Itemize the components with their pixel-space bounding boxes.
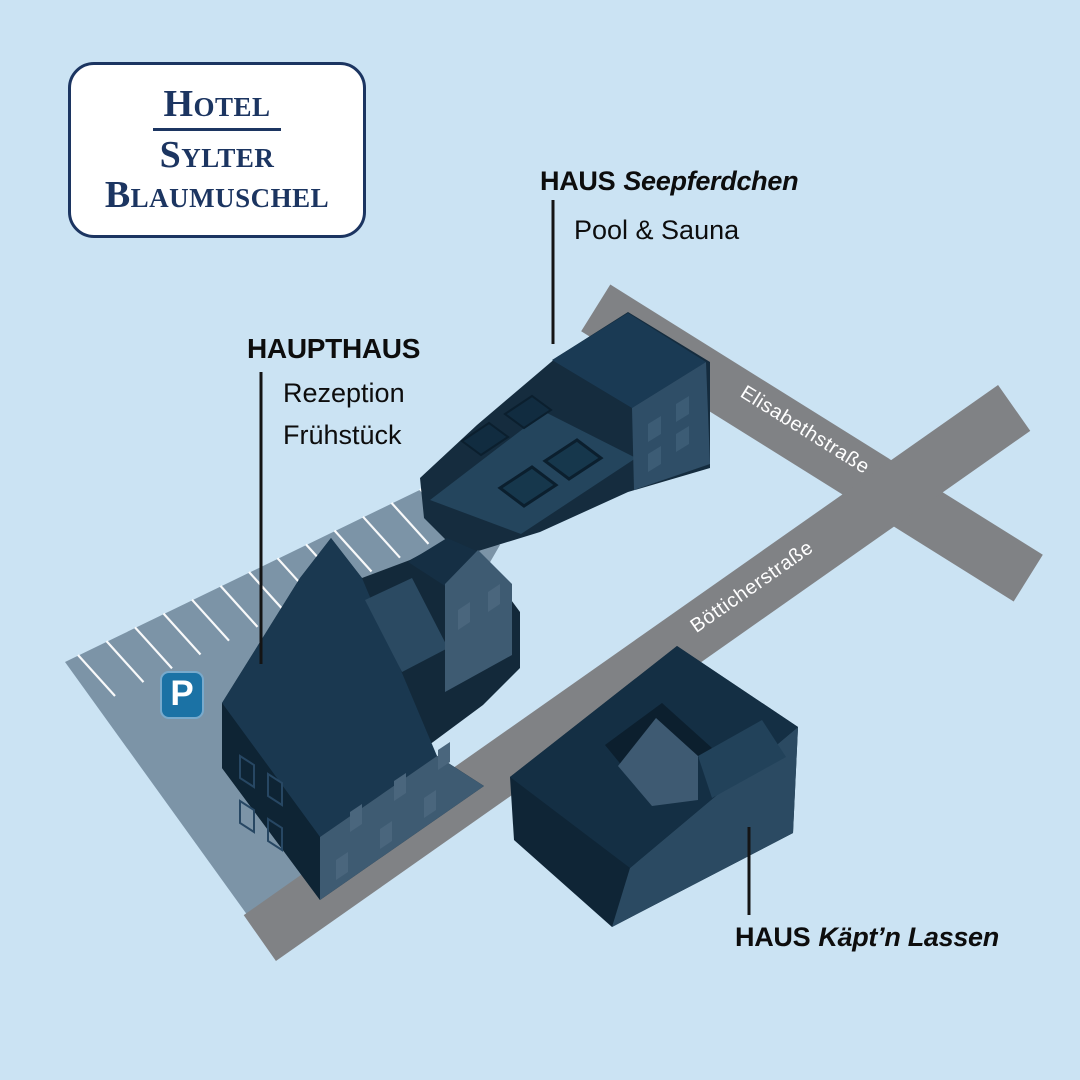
label-haus-kaeptn-prefix: HAUS <box>735 922 810 952</box>
label-haus-seepferdchen-name: Seepferdchen <box>623 166 798 196</box>
parking-sign: P <box>160 671 204 719</box>
label-haus-kaeptn-lassen: HAUSKäpt’n Lassen <box>735 922 999 953</box>
label-haus-seepferdchen-prefix: HAUS <box>540 166 615 196</box>
label-rezeption: Rezeption <box>283 378 405 409</box>
label-haus-seepferdchen: HAUSSeepferdchen <box>540 166 798 197</box>
logo-divider <box>153 128 281 131</box>
hotel-logo: Hotel Sylter Blaumuschel <box>68 62 366 238</box>
logo-line-blaumuschel: Blaumuschel <box>105 176 329 216</box>
label-haus-kaeptn-name: Käpt’n Lassen <box>818 922 999 952</box>
label-pool-sauna: Pool & Sauna <box>574 215 739 246</box>
building-seepferdchen <box>420 312 710 556</box>
logo-line-hotel: Hotel <box>163 85 270 125</box>
building-kaeptn-lassen <box>510 646 798 927</box>
logo-line-sylter: Sylter <box>160 136 275 176</box>
label-fruehstueck: Frühstück <box>283 420 402 451</box>
label-haupthaus: HAUPTHAUS <box>247 333 420 365</box>
